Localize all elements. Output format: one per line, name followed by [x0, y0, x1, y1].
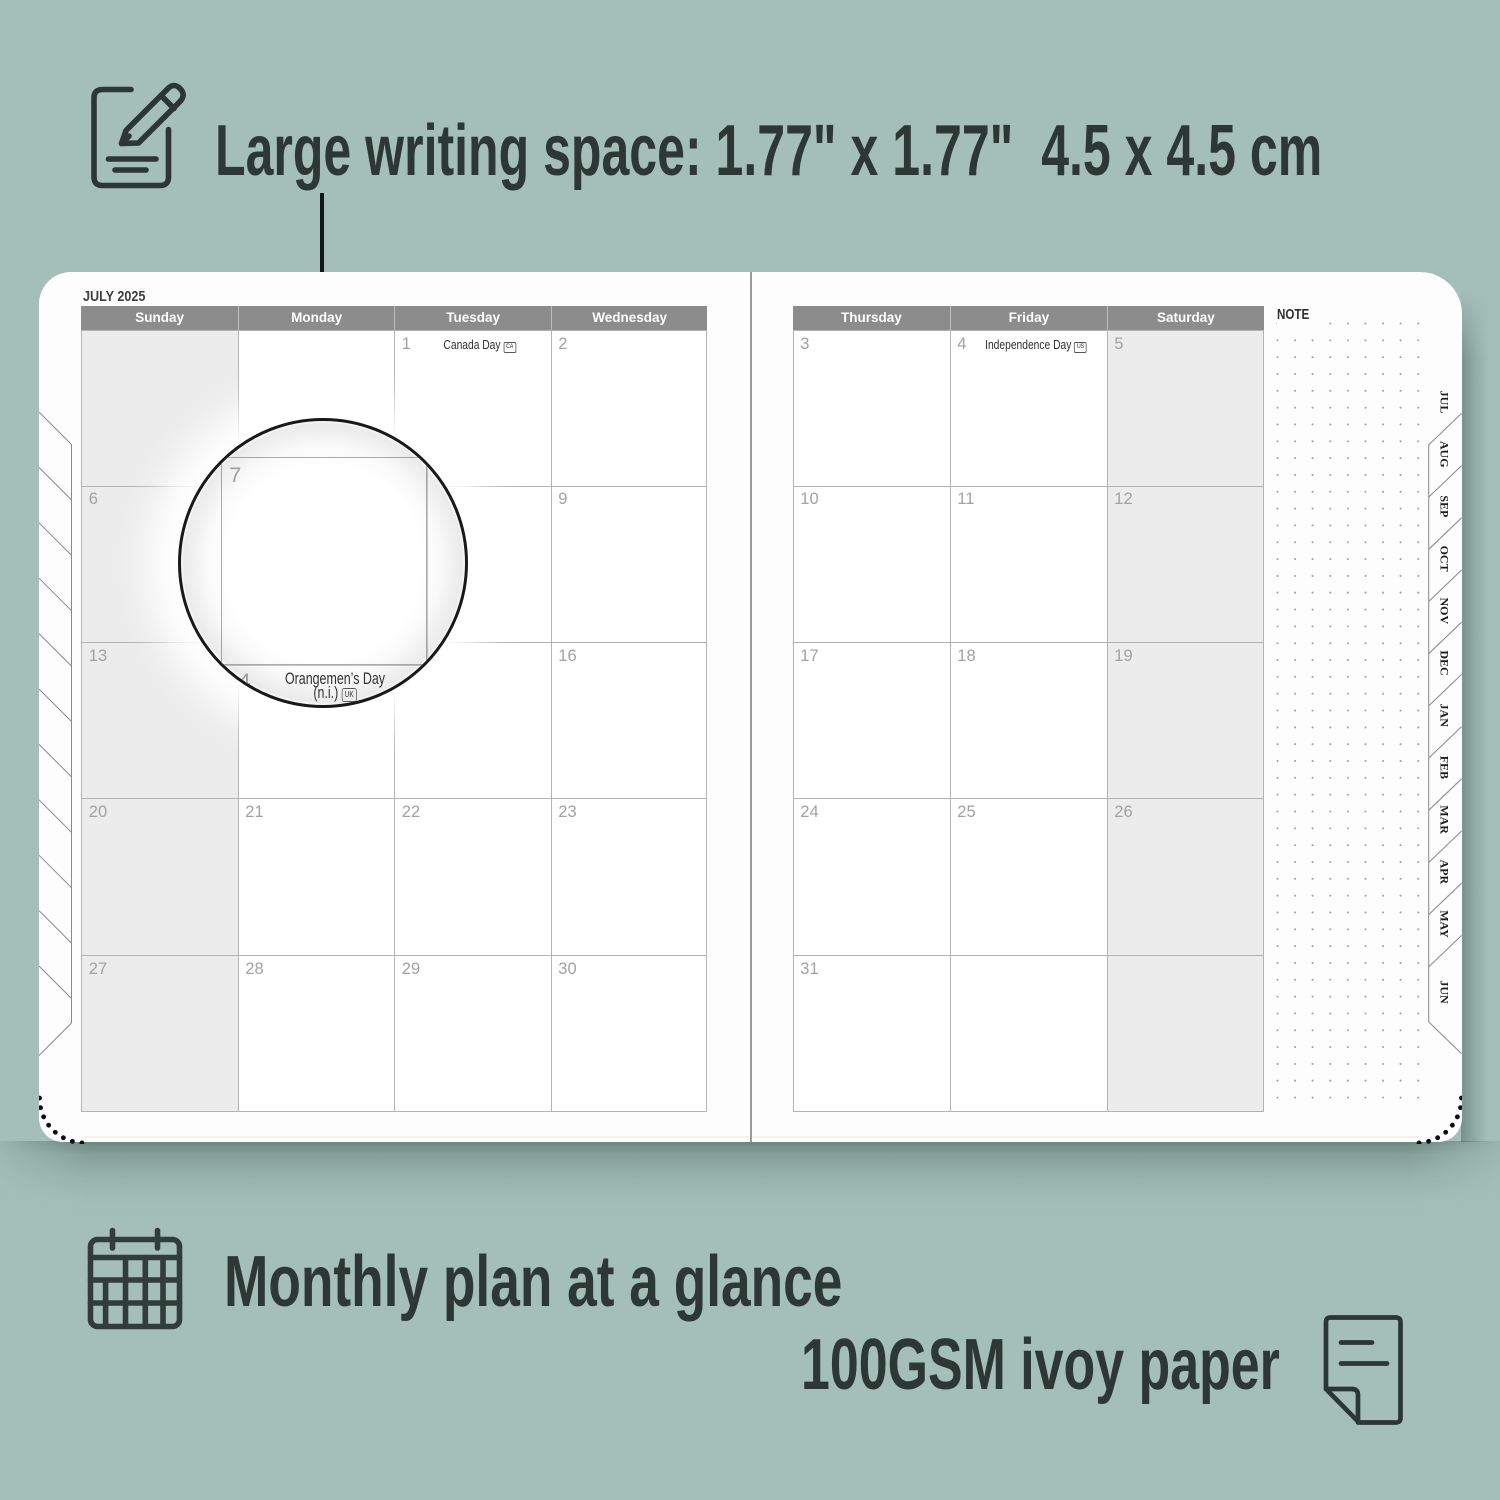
svg-text:FEB: FEB [1437, 756, 1451, 779]
svg-text:JAN: JAN [1437, 704, 1451, 728]
svg-text:APR: APR [1437, 859, 1451, 884]
svg-text:JUN: JUN [1437, 980, 1451, 1004]
svg-text:OCT: OCT [1437, 546, 1451, 572]
svg-text:JUL: JUL [1437, 391, 1451, 414]
svg-text:NOV: NOV [1437, 597, 1451, 624]
svg-text:DEC: DEC [1437, 650, 1451, 675]
svg-text:SEP: SEP [1437, 495, 1451, 517]
svg-text:MAY: MAY [1437, 910, 1451, 938]
svg-text:MAR: MAR [1437, 805, 1451, 834]
svg-text:AUG: AUG [1437, 441, 1451, 468]
